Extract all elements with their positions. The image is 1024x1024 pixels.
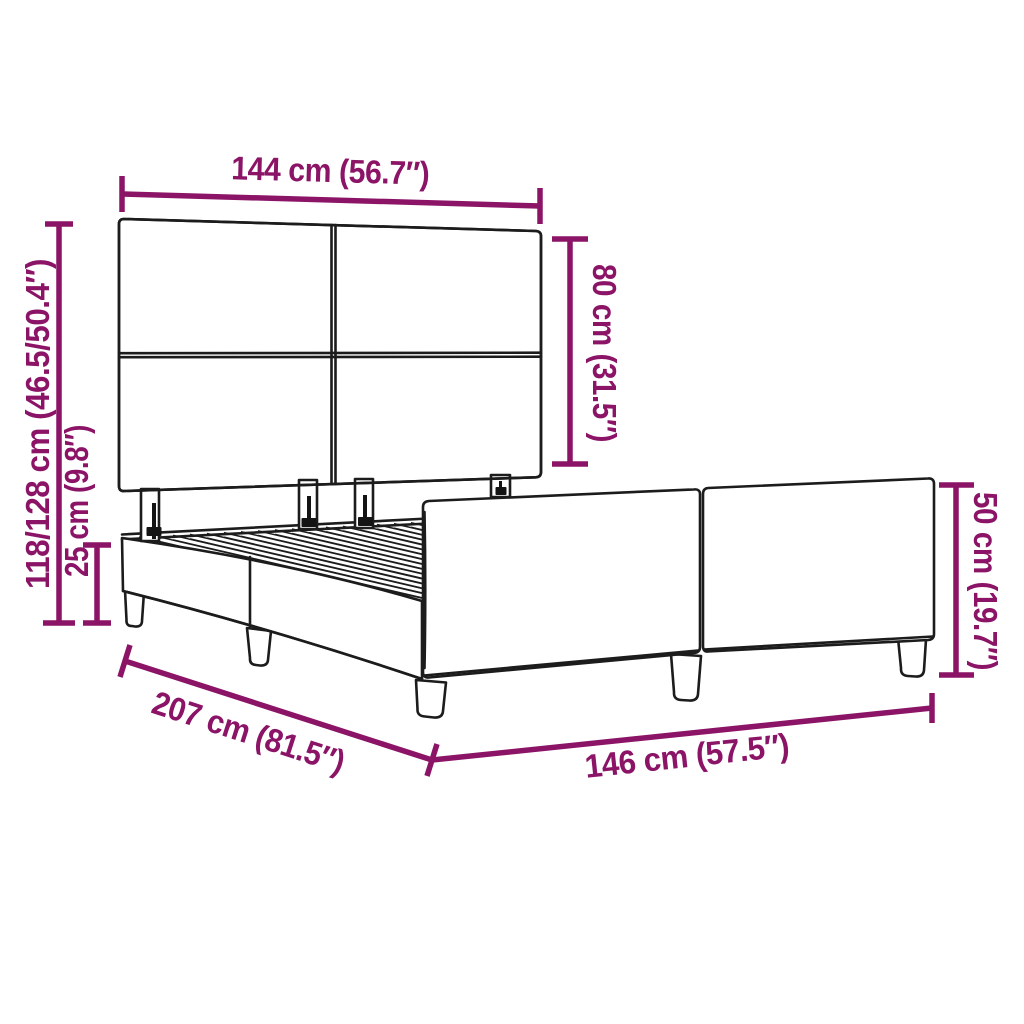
headboard-rail	[122, 519, 428, 540]
leg-front-mid	[247, 628, 271, 666]
bed-frame-dimension-diagram: 144 cm (56.7″) 118/128 cm (46.5/50.4″) 2…	[0, 0, 1024, 1024]
dim-headboard-panel-height	[552, 239, 588, 464]
diagram-canvas: 144 cm (56.7″) 118/128 cm (46.5/50.4″) 2…	[0, 0, 1024, 1024]
label-footend-height: 50 cm (19.7″)	[967, 492, 1004, 670]
dimension-labels: 144 cm (56.7″) 118/128 cm (46.5/50.4″) 2…	[19, 149, 1004, 785]
side-panel-left	[423, 489, 700, 677]
leg-mid	[416, 680, 446, 718]
label-base-height: 25 cm (9.8″)	[58, 425, 95, 577]
side-panel-right	[703, 478, 934, 651]
leg-foot-mid	[671, 654, 701, 701]
leg-foot-right	[898, 638, 926, 677]
label-headboard-panel-height: 80 cm (31.5″)	[586, 264, 623, 442]
headboard	[119, 219, 541, 491]
label-headboard-width: 144 cm (56.7″)	[231, 149, 430, 192]
label-total-height: 118/128 cm (46.5/50.4″)	[19, 259, 56, 589]
